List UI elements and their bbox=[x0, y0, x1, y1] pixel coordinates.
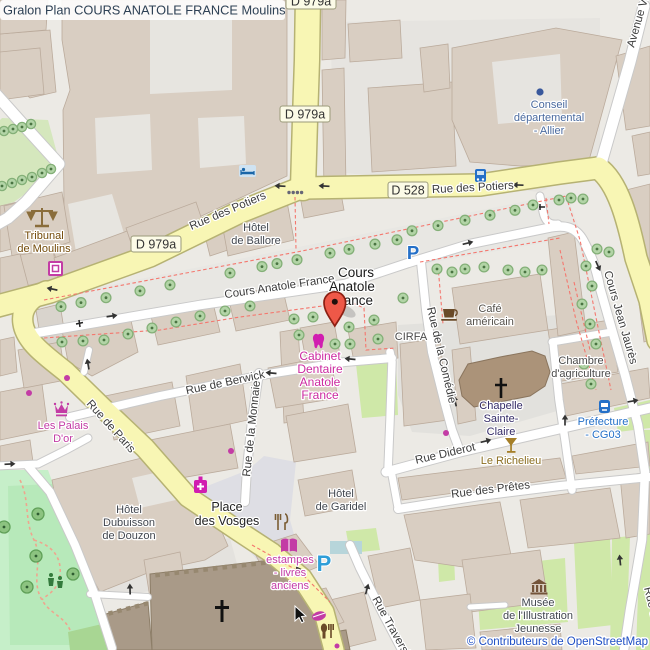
svg-text:Hôtel: Hôtel bbox=[328, 488, 354, 500]
svg-text:de Douzon: de Douzon bbox=[102, 530, 155, 542]
svg-text:Hôtel: Hôtel bbox=[116, 504, 142, 516]
svg-text:des Vosges: des Vosges bbox=[195, 514, 260, 528]
svg-text:Conseil: Conseil bbox=[531, 99, 568, 111]
svg-text:de Moulins: de Moulins bbox=[17, 243, 71, 255]
svg-text:américain: américain bbox=[466, 316, 514, 328]
svg-text:© Contributeurs de OpenStreetM: © Contributeurs de OpenStreetMap bbox=[467, 636, 648, 648]
svg-text:- Allier: - Allier bbox=[534, 125, 565, 137]
svg-text:P: P bbox=[317, 551, 332, 576]
svg-text:Jeunesse: Jeunesse bbox=[514, 623, 561, 635]
svg-text:Place: Place bbox=[211, 500, 242, 514]
svg-text:de Ballore: de Ballore bbox=[231, 235, 281, 247]
svg-text:D 979a: D 979a bbox=[291, 0, 331, 9]
svg-text:de l'Illustration: de l'Illustration bbox=[503, 610, 573, 622]
svg-text:D 528: D 528 bbox=[391, 184, 424, 198]
svg-text:Café: Café bbox=[478, 303, 501, 315]
svg-text:Le Richelieu: Le Richelieu bbox=[481, 455, 542, 467]
svg-text:estampes: estampes bbox=[266, 554, 314, 566]
svg-text:Chambre: Chambre bbox=[558, 355, 603, 367]
svg-text:D'or: D'or bbox=[53, 433, 73, 445]
svg-text:Chapelle: Chapelle bbox=[479, 400, 522, 412]
svg-text:Musée: Musée bbox=[521, 597, 554, 609]
svg-text:Cours: Cours bbox=[338, 265, 374, 280]
svg-text:Anatole: Anatole bbox=[300, 375, 341, 389]
svg-text:Préfecture: Préfecture bbox=[578, 416, 629, 428]
svg-text:Claire: Claire bbox=[487, 426, 516, 438]
svg-text:Hôtel: Hôtel bbox=[243, 222, 269, 234]
svg-text:CIRFA: CIRFA bbox=[395, 331, 428, 343]
svg-text:de Garidel: de Garidel bbox=[316, 501, 367, 513]
svg-text:Dubuisson: Dubuisson bbox=[103, 517, 155, 529]
svg-text:Gralon Plan COURS ANATOLE FRAN: Gralon Plan COURS ANATOLE FRANCE Moulins bbox=[3, 3, 286, 18]
svg-text:France: France bbox=[301, 388, 339, 402]
svg-text:- CG03: - CG03 bbox=[585, 429, 620, 441]
svg-text:D 979a: D 979a bbox=[285, 108, 325, 122]
svg-text:d'agriculture: d'agriculture bbox=[551, 368, 611, 380]
svg-text:anciens: anciens bbox=[271, 580, 309, 592]
svg-text:D 979a: D 979a bbox=[136, 238, 176, 252]
svg-text:Sainte-: Sainte- bbox=[484, 413, 519, 425]
svg-text:départemental: départemental bbox=[514, 112, 584, 124]
svg-text:Les Palais: Les Palais bbox=[38, 420, 89, 432]
svg-text:Tribunal: Tribunal bbox=[24, 230, 63, 242]
svg-text:P: P bbox=[407, 242, 419, 263]
svg-text:Dentaire: Dentaire bbox=[297, 362, 343, 376]
svg-text:Cabinet: Cabinet bbox=[299, 349, 341, 363]
svg-text:- livres: - livres bbox=[274, 567, 307, 579]
